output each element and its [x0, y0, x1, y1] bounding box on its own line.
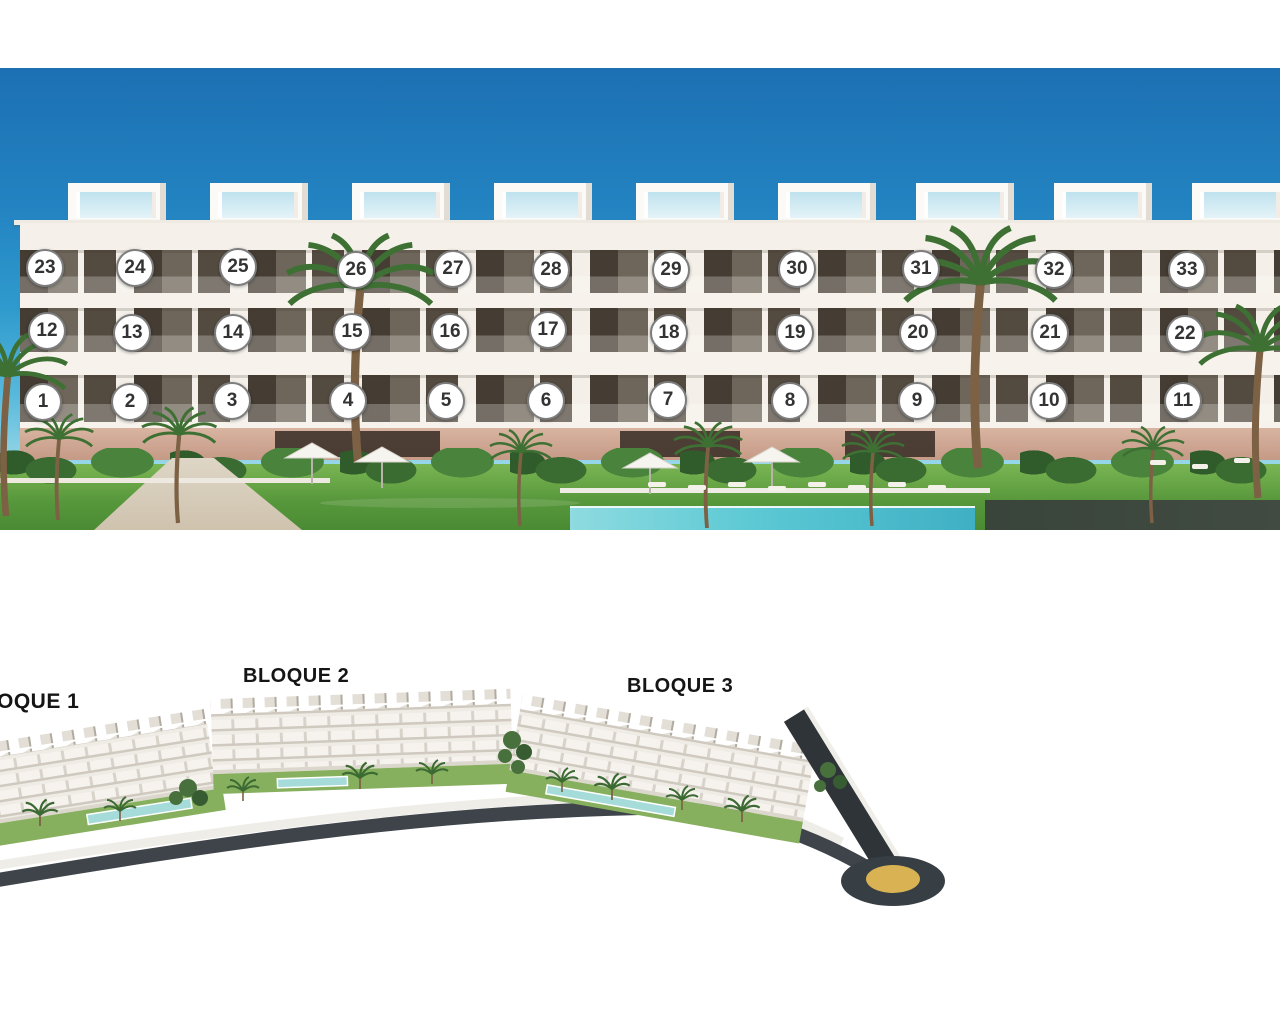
unit-marker-16[interactable]: 16	[431, 313, 469, 351]
block-1	[0, 708, 226, 846]
unit-marker-26[interactable]: 26	[337, 251, 375, 289]
unit-marker-18[interactable]: 18	[650, 314, 688, 352]
unit-marker-6[interactable]: 6	[527, 382, 565, 420]
block-2	[210, 689, 513, 794]
block-3	[506, 694, 817, 843]
block-1-label: BLOQUE 1	[0, 690, 79, 714]
unit-marker-14[interactable]: 14	[214, 314, 252, 352]
unit-marker-2[interactable]: 2	[111, 383, 149, 421]
unit-marker-12[interactable]: 12	[28, 312, 66, 350]
unit-marker-9[interactable]: 9	[898, 382, 936, 420]
unit-marker-25[interactable]: 25	[219, 248, 257, 286]
unit-marker-11[interactable]: 11	[1164, 382, 1202, 420]
unit-marker-5[interactable]: 5	[427, 382, 465, 420]
unit-marker-22[interactable]: 22	[1166, 315, 1204, 353]
unit-marker-23[interactable]: 23	[26, 249, 64, 287]
unit-marker-20[interactable]: 20	[899, 314, 937, 352]
site-plan-view: BLOQUE 1 BLOQUE 2 BLOQUE 3	[0, 640, 1280, 1024]
unit-marker-10[interactable]: 10	[1030, 382, 1068, 420]
unit-marker-31[interactable]: 31	[902, 250, 940, 288]
unit-marker-7[interactable]: 7	[649, 381, 687, 419]
block-3-label: BLOQUE 3	[627, 675, 733, 698]
unit-marker-17[interactable]: 17	[529, 311, 567, 349]
unit-marker-24[interactable]: 24	[116, 249, 154, 287]
unit-marker-21[interactable]: 21	[1031, 314, 1069, 352]
unit-marker-30[interactable]: 30	[778, 250, 816, 288]
building-front-view: 1234567891011121314151617181920212223242…	[0, 68, 1280, 530]
block-2-label: BLOQUE 2	[243, 665, 349, 688]
unit-marker-13[interactable]: 13	[113, 314, 151, 352]
unit-marker-3[interactable]: 3	[213, 382, 251, 420]
unit-marker-33[interactable]: 33	[1168, 251, 1206, 289]
unit-markers: 1234567891011121314151617181920212223242…	[0, 68, 1280, 530]
unit-marker-15[interactable]: 15	[333, 313, 371, 351]
unit-marker-27[interactable]: 27	[434, 250, 472, 288]
unit-marker-32[interactable]: 32	[1035, 251, 1073, 289]
roundabout-center	[866, 865, 920, 893]
unit-marker-19[interactable]: 19	[776, 314, 814, 352]
unit-marker-1[interactable]: 1	[24, 383, 62, 421]
unit-marker-8[interactable]: 8	[771, 382, 809, 420]
unit-marker-29[interactable]: 29	[652, 251, 690, 289]
real-estate-render-page: 1234567891011121314151617181920212223242…	[0, 0, 1280, 1024]
unit-marker-28[interactable]: 28	[532, 251, 570, 289]
unit-marker-4[interactable]: 4	[329, 382, 367, 420]
